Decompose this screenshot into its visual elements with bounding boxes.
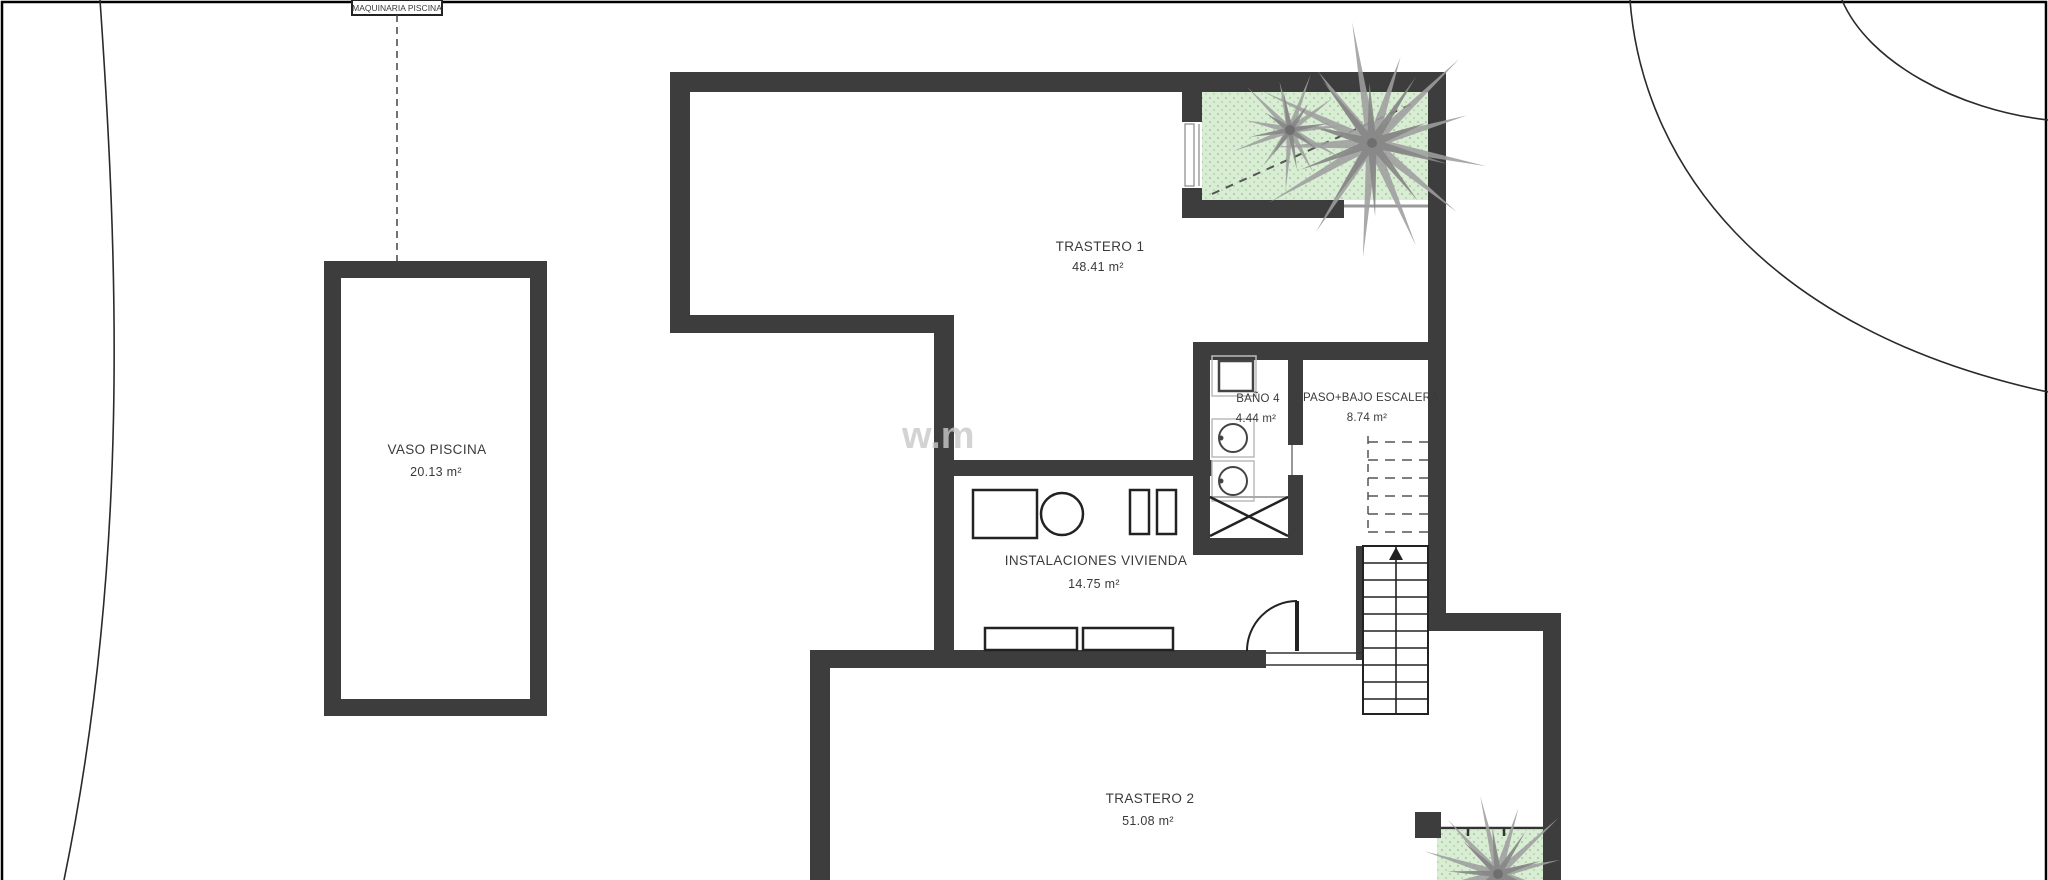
watermark-text: w.m [901,415,975,457]
plot-boundary-right [1630,0,2048,392]
plot-boundary-left [64,0,114,880]
label-trastero-2: TRASTERO 2 [1106,791,1195,806]
wall-bath-right-upper [1288,342,1303,445]
wall-connector-vertical [934,315,954,668]
bidet-drain [1219,479,1224,484]
label-bano-4: BAÑO 4 [1236,392,1280,405]
area-trastero-1: 48.41 m² [1072,260,1124,274]
wall-left-upper [670,72,690,333]
wall-bottomright-horizontal [1428,613,1561,631]
wall-trastero1-bottom [670,315,954,333]
duct-1 [1130,490,1149,534]
sink [1219,361,1253,391]
shower-cross [1210,497,1288,536]
wall-bath-bottom [1193,538,1303,555]
wall-planter-bottom [1182,200,1344,218]
bench-2 [1083,628,1173,650]
stairs [1363,436,1428,714]
trastero2-threshold [1266,653,1363,665]
plot-boundary-corner [1842,0,2048,120]
label-trastero-1: TRASTERO 1 [1056,239,1145,254]
area-paso: 8.74 m² [1347,412,1387,424]
wall-installations-top [934,460,1212,476]
boiler-tank [1041,493,1083,535]
area-vaso-piscina: 20.13 m² [410,465,462,479]
area-instalaciones: 14.75 m² [1068,577,1120,591]
area-bano-4: 4.44 m² [1236,413,1276,425]
floor-plan-drawing: MAQUINARIA PISCINA [0,0,2048,880]
bathroom-fixtures [1210,356,1288,536]
machinery-label: MAQUINARIA PISCINA [352,3,442,13]
equipment-box [973,490,1037,538]
wall-installations-bottom [934,650,1266,668]
understair-dashed-treads [1368,442,1428,532]
door-swing-arc [1247,601,1297,651]
wall-bath-paso-top [1193,342,1446,360]
area-trastero-2: 51.08 m² [1122,814,1174,828]
duct-2 [1157,490,1176,534]
wall-trastero2-left [810,650,830,880]
floor-plan-page: MAQUINARIA PISCINA [0,0,2048,880]
wall-bath-left [1193,342,1210,555]
toilet-drain [1219,436,1224,441]
pool [324,261,547,716]
label-vaso-piscina: VASO PISCINA [387,442,486,457]
installations-fixtures [973,490,1176,650]
planter-window [1185,124,1194,186]
pool-machinery: MAQUINARIA PISCINA [352,0,442,261]
label-instalaciones: INSTALACIONES VIVIENDA [1005,553,1188,568]
pool-basin [341,278,530,699]
label-paso: PASO+BAJO ESCALERA [1303,392,1439,404]
wall-lowerright-vertical [1543,613,1561,880]
bench-1 [985,628,1077,650]
wall-planter-left-upper [1182,92,1202,122]
wall-planter-post [1415,812,1441,838]
door-trastero2 [1247,601,1297,651]
page-border [2,2,2046,880]
